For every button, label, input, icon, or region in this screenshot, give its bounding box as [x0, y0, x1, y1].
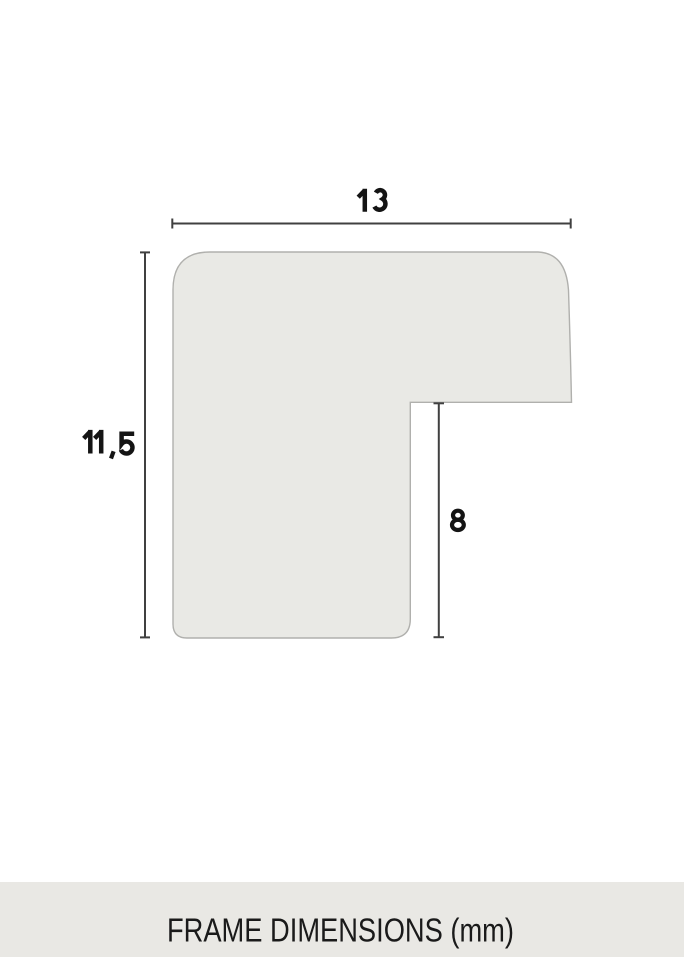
svg-text:FRAME DIMENSIONS (mm): FRAME DIMENSIONS (mm): [167, 912, 514, 949]
